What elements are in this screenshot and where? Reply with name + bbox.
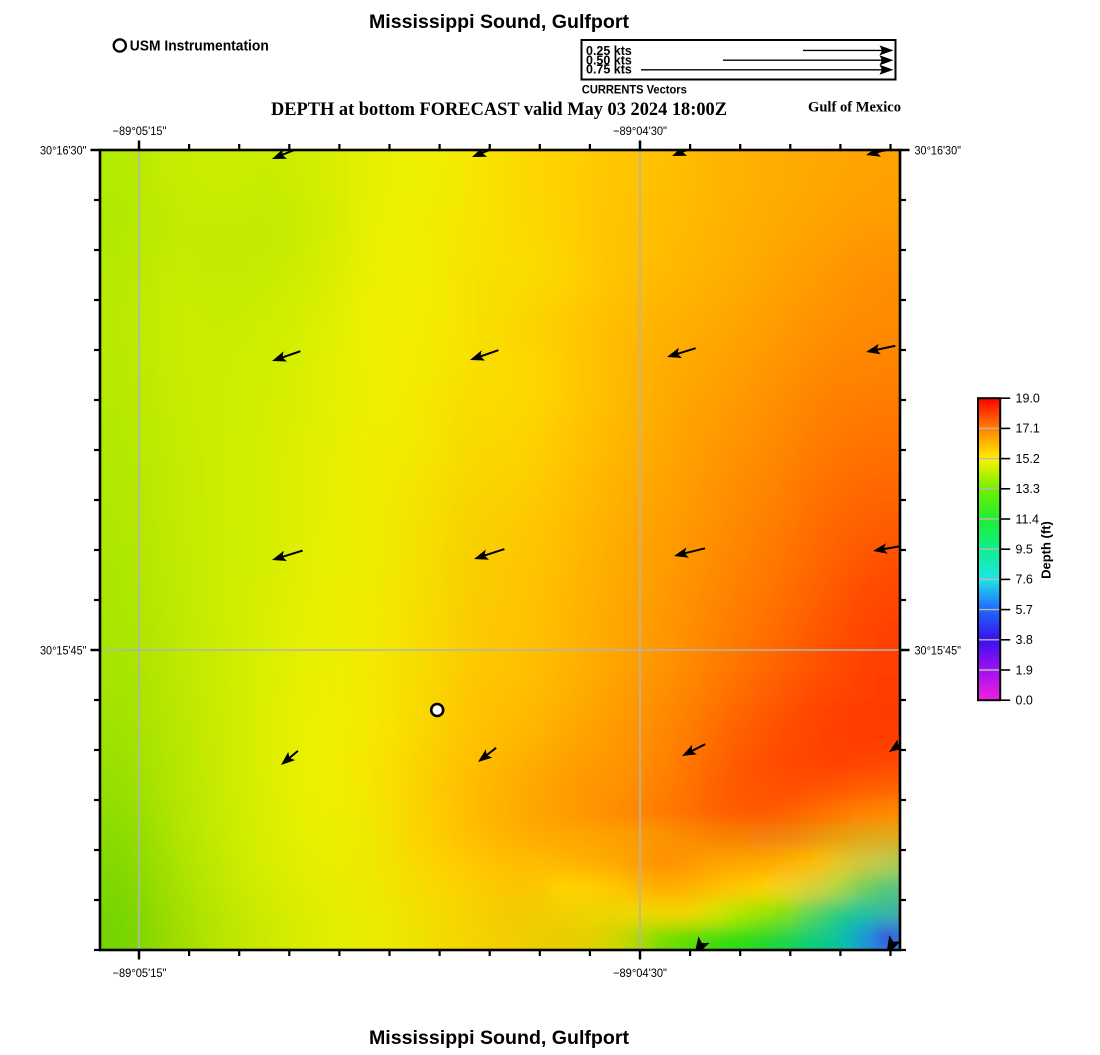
- svg-text:30°15'45": 30°15'45": [40, 643, 87, 657]
- svg-text:5.7: 5.7: [1016, 603, 1033, 617]
- svg-text:Depth (ft): Depth (ft): [1039, 521, 1054, 579]
- svg-text:9.5: 9.5: [1016, 543, 1033, 557]
- svg-text:0.0: 0.0: [1016, 694, 1033, 708]
- svg-text:13.3: 13.3: [1016, 482, 1040, 496]
- svg-text:19.0: 19.0: [1016, 392, 1040, 406]
- svg-text:CURRENTS Vectors: CURRENTS Vectors: [582, 82, 687, 96]
- svg-text:−89°04'30": −89°04'30": [613, 966, 667, 980]
- svg-text:0.75 kts: 0.75 kts: [586, 63, 632, 77]
- svg-text:30°16'30": 30°16'30": [915, 143, 962, 157]
- svg-text:Gulf of Mexico: Gulf of Mexico: [808, 100, 901, 116]
- svg-text:−89°05'15": −89°05'15": [113, 966, 167, 980]
- svg-text:−89°04'30": −89°04'30": [613, 124, 667, 138]
- svg-text:15.2: 15.2: [1016, 452, 1040, 466]
- svg-text:11.4: 11.4: [1016, 512, 1039, 526]
- svg-text:1.9: 1.9: [1016, 663, 1033, 677]
- svg-text:Mississippi Sound, Gulfport: Mississippi Sound, Gulfport: [369, 1027, 630, 1049]
- svg-text:3.8: 3.8: [1016, 633, 1033, 647]
- svg-text:7.6: 7.6: [1016, 573, 1033, 587]
- svg-text:30°15'45": 30°15'45": [915, 643, 962, 657]
- svg-text:USM Instrumentation: USM Instrumentation: [130, 37, 269, 54]
- svg-text:DEPTH at bottom FORECAST valid: DEPTH at bottom FORECAST valid May 03 20…: [271, 100, 727, 120]
- svg-text:30°16'30": 30°16'30": [40, 143, 87, 157]
- svg-text:17.1: 17.1: [1016, 422, 1040, 436]
- svg-text:−89°05'15": −89°05'15": [113, 124, 167, 138]
- svg-text:Mississippi Sound, Gulfport: Mississippi Sound, Gulfport: [369, 11, 630, 33]
